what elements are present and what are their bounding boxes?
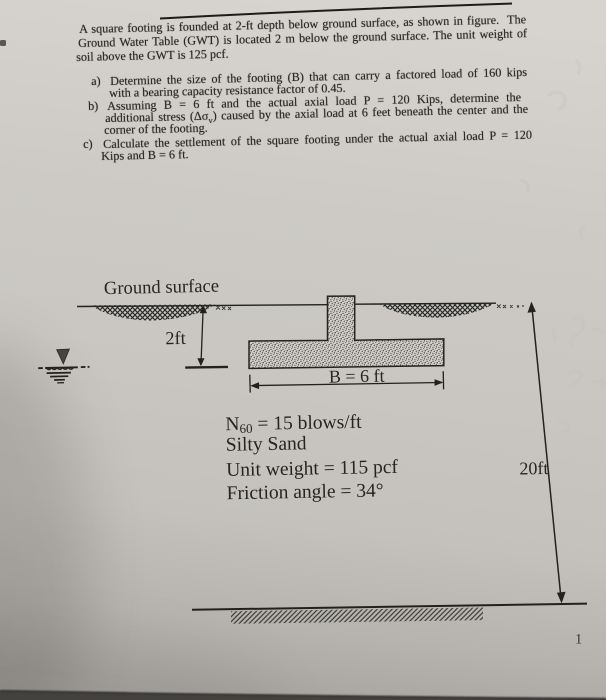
svg-text:20ft: 20ft <box>519 458 548 479</box>
svg-text:1: 1 <box>575 632 582 648</box>
svg-text:Unit weight = 115 pcf: Unit weight = 115 pcf <box>226 457 399 481</box>
svg-text:Silty Sand: Silty Sand <box>226 433 307 455</box>
svg-text:B = 6 ft: B = 6 ft <box>329 366 385 387</box>
svg-text:Ground surface: Ground surface <box>104 276 220 300</box>
svg-text:2ft: 2ft <box>165 328 186 348</box>
svg-text:Friction angle = 34°: Friction angle = 34° <box>226 480 383 504</box>
